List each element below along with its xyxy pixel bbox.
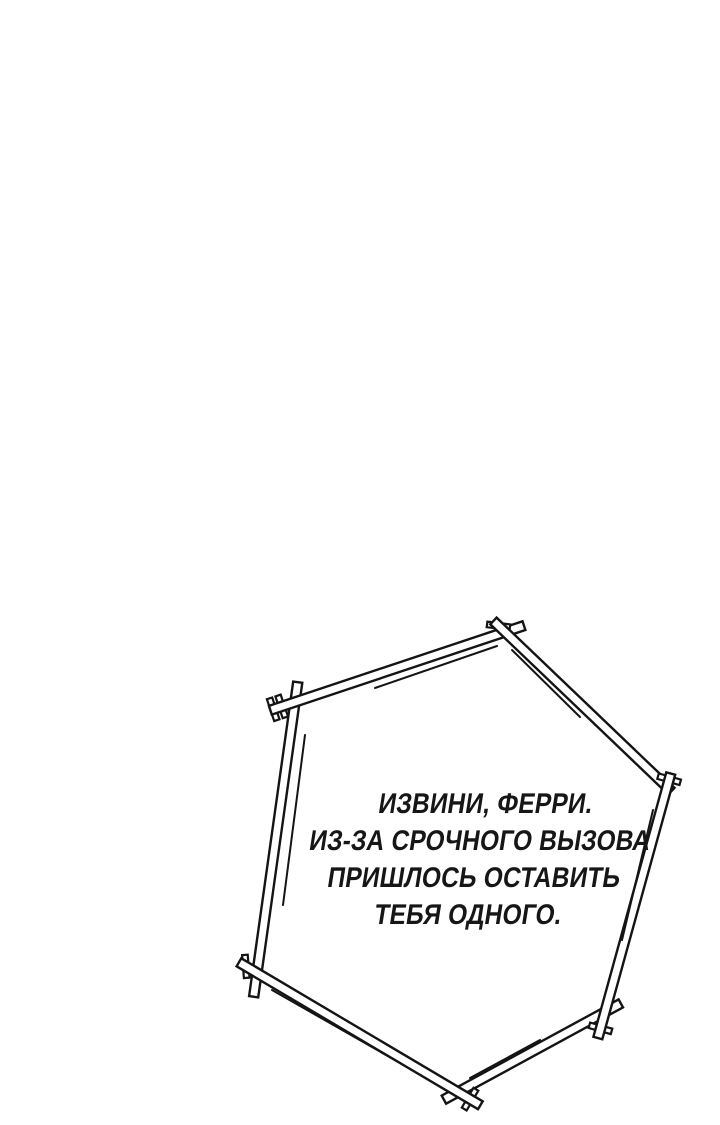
bubble-frame-bar (490, 618, 674, 795)
bubble-frame-bar (442, 999, 623, 1103)
comic-panel: ИЗВИНИ, ФЕРРИ. ИЗ-ЗА СРОЧНОГО ВЫЗОВА ПРИ… (0, 0, 720, 1125)
speech-bubble-frame (0, 0, 720, 1125)
dialogue-line: ПРИШЛОСЬ ОСТАВИТЬ (282, 860, 666, 897)
dialogue-text: ИЗВИНИ, ФЕРРИ. ИЗ-ЗА СРОЧНОГО ВЫЗОВА ПРИ… (276, 786, 678, 934)
bubble-frame-bar (269, 621, 526, 714)
bubble-frame-accent-line (272, 990, 400, 1063)
bubble-frame-bar (237, 958, 483, 1109)
bubble-frame-accent-line (512, 650, 580, 717)
dialogue-line: ИЗ-ЗА СРОЧНОГО ВЫЗОВА (288, 823, 672, 860)
dialogue-line: ИЗВИНИ, ФЕРРИ. (294, 786, 678, 823)
dialogue-line: ТЕБЯ ОДНОГО. (276, 897, 660, 934)
